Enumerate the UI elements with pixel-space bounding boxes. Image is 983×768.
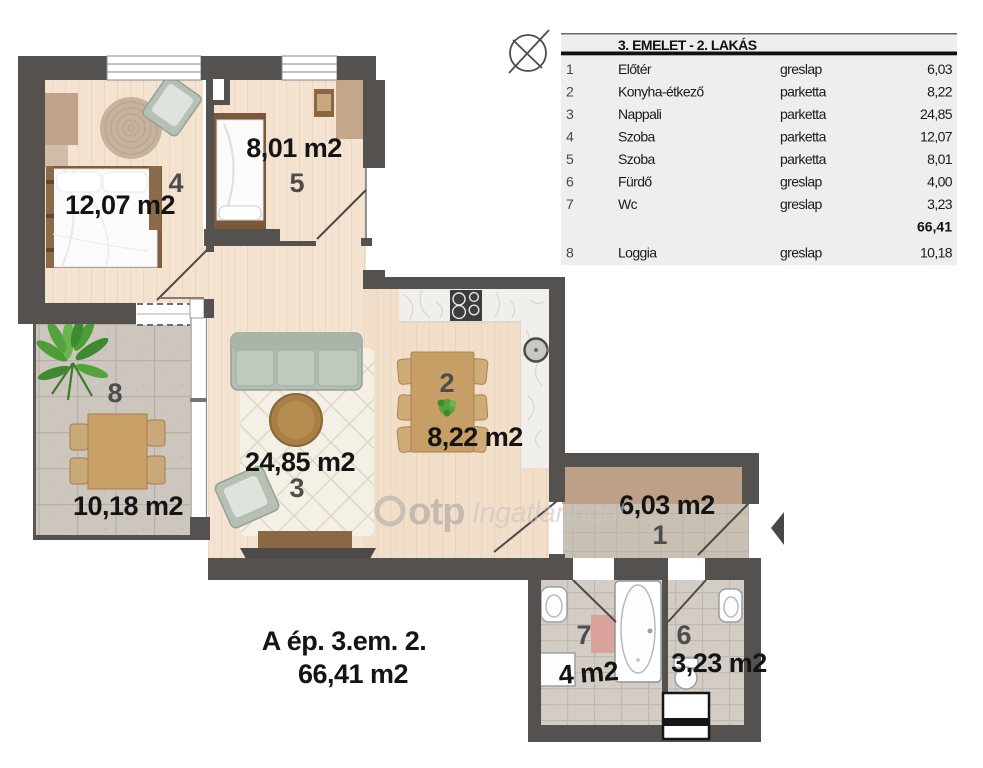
svg-text:Fürdő: Fürdő [618, 174, 652, 190]
svg-text:greslap: greslap [780, 174, 823, 190]
svg-text:6,03: 6,03 [927, 61, 953, 77]
svg-text:24,85 m2: 24,85 m2 [245, 447, 355, 477]
svg-text:1: 1 [652, 520, 667, 550]
svg-text:1: 1 [566, 61, 574, 77]
svg-text:parketta: parketta [780, 129, 827, 145]
svg-text:5: 5 [566, 151, 574, 167]
svg-text:6: 6 [676, 620, 691, 650]
svg-text:6: 6 [566, 174, 574, 190]
svg-text:8: 8 [566, 245, 574, 261]
svg-text:12,07 m2: 12,07 m2 [65, 190, 175, 220]
svg-text:Nappali: Nappali [618, 106, 662, 122]
svg-text:8,01: 8,01 [927, 151, 953, 167]
svg-text:otp: otp [408, 491, 465, 533]
svg-text:A ép. 3.em. 2.: A ép. 3.em. 2. [262, 626, 427, 656]
svg-text:3,23 m2: 3,23 m2 [671, 648, 767, 678]
svg-text:7: 7 [566, 196, 574, 212]
svg-text:Ingatlanpont: Ingatlanpont [472, 497, 627, 529]
svg-text:Előtér: Előtér [618, 61, 652, 77]
svg-text:7: 7 [576, 620, 591, 650]
svg-text:8: 8 [107, 378, 122, 408]
svg-text:2: 2 [566, 84, 574, 100]
svg-text:4 m2: 4 m2 [558, 656, 619, 690]
svg-text:Szoba: Szoba [618, 151, 656, 167]
svg-text:3: 3 [566, 106, 574, 122]
svg-text:2: 2 [439, 368, 454, 398]
svg-text:greslap: greslap [780, 245, 823, 261]
svg-text:parketta: parketta [780, 84, 827, 100]
svg-text:Loggia: Loggia [618, 245, 657, 261]
svg-text:12,07: 12,07 [920, 129, 953, 145]
svg-text:66,41 m2: 66,41 m2 [298, 659, 408, 689]
svg-text:greslap: greslap [780, 61, 823, 77]
svg-text:Konyha-étkező: Konyha-étkező [618, 84, 704, 100]
svg-text:8,01 m2: 8,01 m2 [246, 133, 342, 163]
svg-text:10,18: 10,18 [920, 245, 953, 261]
svg-text:Wc: Wc [618, 196, 638, 212]
svg-text:24,85: 24,85 [920, 106, 953, 122]
svg-text:5: 5 [289, 168, 304, 198]
svg-text:3: 3 [289, 473, 304, 503]
svg-text:Szoba: Szoba [618, 129, 656, 145]
svg-text:greslap: greslap [780, 196, 823, 212]
svg-text:3,23: 3,23 [927, 196, 953, 212]
svg-text:4,00: 4,00 [927, 174, 953, 190]
svg-text:4: 4 [566, 129, 574, 145]
svg-text:66,41: 66,41 [917, 219, 952, 235]
svg-text:8,22: 8,22 [927, 84, 953, 100]
svg-text:10,18 m2: 10,18 m2 [73, 491, 183, 521]
svg-text:8,22 m2: 8,22 m2 [427, 422, 523, 452]
svg-text:parketta: parketta [780, 151, 827, 167]
svg-text:parketta: parketta [780, 106, 827, 122]
svg-text:6,03 m2: 6,03 m2 [619, 490, 715, 520]
svg-text:3. EMELET - 2. LAKÁS: 3. EMELET - 2. LAKÁS [618, 37, 757, 53]
